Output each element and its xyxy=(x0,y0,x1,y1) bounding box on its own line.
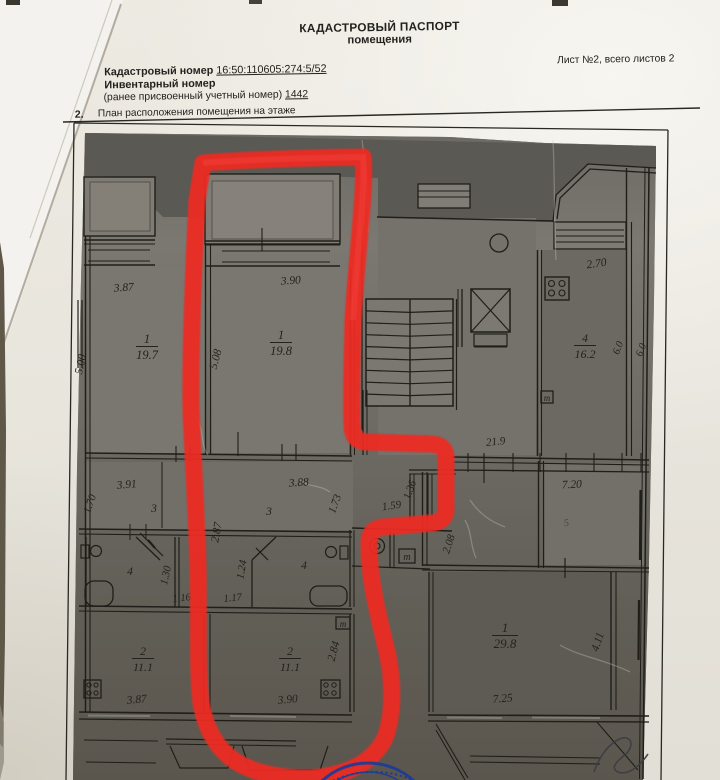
svg-text:т: т xyxy=(340,619,347,629)
svg-text:2: 2 xyxy=(140,644,146,658)
svg-text:3.90: 3.90 xyxy=(276,693,298,707)
svg-text:21.9: 21.9 xyxy=(485,435,506,449)
svg-text:7.20: 7.20 xyxy=(561,478,582,491)
svg-text:29.8: 29.8 xyxy=(494,636,517,651)
svg-text:19.8: 19.8 xyxy=(270,344,293,358)
svg-text:1: 1 xyxy=(278,328,284,342)
svg-text:1.16: 1.16 xyxy=(172,592,192,605)
svg-text:16.2: 16.2 xyxy=(575,347,596,361)
svg-text:1: 1 xyxy=(502,620,509,635)
svg-text:т: т xyxy=(544,393,551,403)
svg-text:3.87: 3.87 xyxy=(112,281,135,295)
svg-text:3.90: 3.90 xyxy=(279,274,301,287)
svg-text:19.7: 19.7 xyxy=(136,348,159,362)
svg-text:1: 1 xyxy=(144,332,150,346)
svg-text:11.1: 11.1 xyxy=(133,660,153,674)
svg-text:3: 3 xyxy=(265,506,272,518)
svg-text:1.17: 1.17 xyxy=(223,592,243,605)
svg-text:4: 4 xyxy=(582,331,588,345)
svg-text:2: 2 xyxy=(287,644,293,658)
svg-text:7.25: 7.25 xyxy=(492,692,513,706)
svg-text:3: 3 xyxy=(150,503,157,515)
svg-text:4: 4 xyxy=(301,560,307,572)
svg-text:11.1: 11.1 xyxy=(280,660,300,674)
svg-text:т: т xyxy=(403,552,410,563)
svg-text:4: 4 xyxy=(127,566,133,578)
svg-text:3.91: 3.91 xyxy=(115,478,137,492)
svg-text:3.87: 3.87 xyxy=(125,693,148,707)
svg-text:3.88: 3.88 xyxy=(287,476,309,489)
